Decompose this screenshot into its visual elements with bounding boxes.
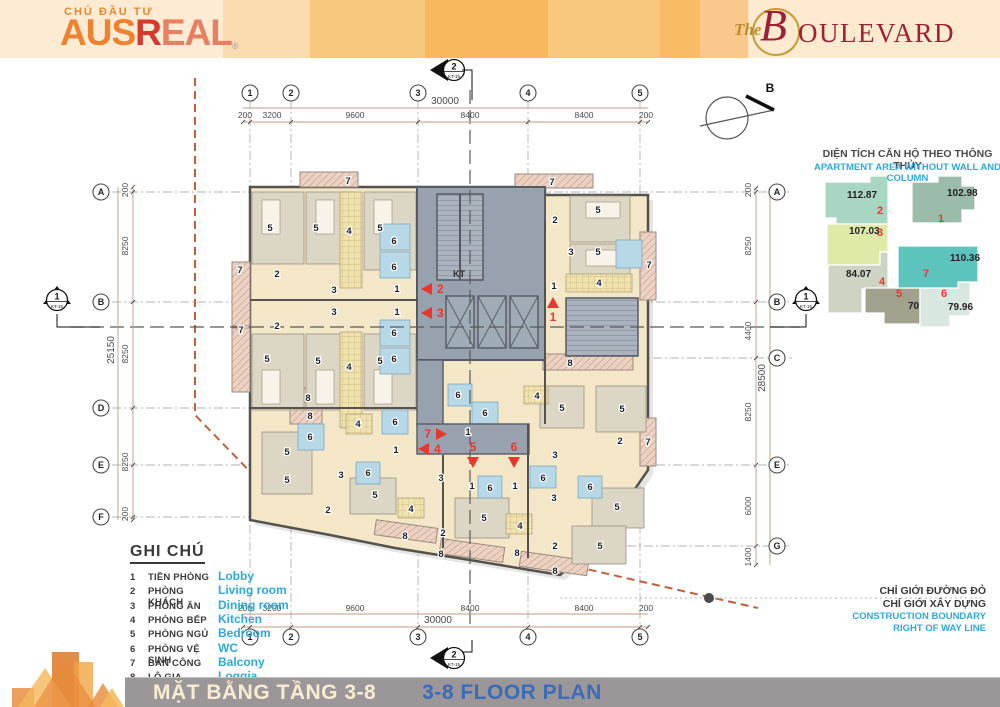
bed-icon (262, 370, 280, 404)
svg-text:107.03: 107.03 (849, 226, 880, 237)
svg-text:8400: 8400 (575, 603, 594, 613)
room-number: 8 (402, 531, 407, 542)
room-number: 1 (394, 307, 400, 318)
room-number: 4 (346, 226, 352, 237)
bed-icon (374, 370, 392, 404)
room-number: 5 (267, 223, 273, 234)
footer-title-en: 3-8 FLOOR PLAN (422, 681, 602, 705)
room-number: 5 (264, 354, 270, 365)
svg-text:30000: 30000 (424, 615, 452, 626)
svg-text:KT-15: KT-15 (800, 304, 813, 309)
svg-text:84.07: 84.07 (846, 269, 871, 280)
room-number: 6 (391, 328, 396, 339)
legend-item: 3PHÒNG ĂNDining room (130, 598, 330, 612)
svg-text:8250: 8250 (120, 344, 130, 363)
room-number: 4 (534, 391, 540, 402)
room-number: 5 (481, 513, 487, 524)
svg-text:KT-15: KT-15 (51, 304, 64, 309)
svg-text:5: 5 (637, 632, 642, 642)
room-number: 6 (391, 354, 396, 365)
room-number: 5 (372, 490, 378, 501)
svg-text:8400: 8400 (461, 603, 480, 613)
svg-text:KT-15: KT-15 (448, 74, 461, 79)
room-number: 6 (391, 262, 396, 273)
floor-plan-page: CHỦ ĐẦU TƯ AUSREAL® The B OULEVARD KT (0, 0, 1000, 707)
svg-text:200: 200 (238, 110, 252, 120)
room-number: 1 (394, 284, 400, 295)
svg-text:1: 1 (550, 310, 557, 324)
room-number: 5 (313, 223, 319, 234)
svg-text:3: 3 (415, 88, 420, 98)
room-number: 2 (274, 269, 279, 280)
svg-text:C: C (774, 353, 781, 363)
room-number: 7 (345, 176, 350, 187)
room-number: 1 (393, 445, 399, 456)
room-number: 3 (568, 247, 573, 258)
room-number: 4 (355, 419, 361, 430)
room-number: 5 (284, 447, 290, 458)
room-number: 5 (595, 247, 601, 258)
room-number: 3 (551, 493, 556, 504)
svg-text:G: G (773, 541, 780, 551)
svg-text:4: 4 (525, 88, 530, 98)
svg-text:1: 1 (54, 292, 59, 302)
bed-icon (316, 370, 334, 404)
svg-text:1400: 1400 (743, 547, 753, 566)
room-number: 6 (365, 468, 370, 479)
room-number: 7 (646, 260, 651, 271)
room-number: 6 (392, 417, 397, 428)
svg-text:6: 6 (941, 288, 947, 300)
kitchen (340, 192, 362, 288)
legend-item: 2PHÒNG KHÁCHLiving room (130, 583, 330, 597)
svg-text:5: 5 (637, 88, 642, 98)
svg-text:7: 7 (424, 427, 431, 441)
svg-text:KT: KT (453, 269, 465, 279)
room-number: 8 (567, 358, 572, 369)
room-number: 6 (307, 432, 312, 443)
svg-text:28500: 28500 (757, 364, 768, 392)
room-number: 1 (551, 281, 557, 292)
room-number: 5 (597, 541, 603, 552)
room-number: 8 (552, 566, 557, 577)
apartment-key-plan: 102.981112.872107.03384.07470.57579.9661… (825, 176, 980, 327)
room-number: 2 (274, 321, 279, 332)
room-number: 2 (325, 505, 330, 516)
legend-item: 6PHÒNG VỆ SINHWC (130, 641, 330, 655)
section-marker: 1KT-15 (792, 286, 820, 311)
room-number: 3 (552, 450, 557, 461)
boundary-note-en2: RIGHT OF WAY LINE (852, 623, 986, 635)
svg-text:5: 5 (896, 288, 902, 300)
room-number: 6 (587, 482, 592, 493)
keyplan-title-en: APARTMENT AREA WITHOUT WALL AND COLUMN (810, 162, 1000, 184)
room-number: 3 (338, 470, 343, 481)
legend-item: 5PHÒNG NGỦBedroom (130, 626, 330, 640)
room-number: 4 (517, 521, 523, 532)
svg-text:B: B (774, 297, 781, 307)
svg-text:2: 2 (877, 205, 883, 217)
room-number: 4 (346, 362, 352, 373)
svg-text:102.98: 102.98 (947, 188, 978, 199)
room-number: 7 (549, 177, 554, 188)
corridor (417, 360, 443, 426)
room-number: 5 (619, 404, 625, 415)
svg-text:1: 1 (938, 213, 944, 225)
svg-text:E: E (98, 460, 104, 470)
svg-text:200: 200 (120, 183, 130, 197)
section-marker: 2KT-15 (430, 59, 465, 81)
svg-text:9600: 9600 (346, 110, 365, 120)
svg-text:110.36: 110.36 (950, 253, 980, 264)
svg-text:2: 2 (451, 650, 456, 660)
svg-text:4: 4 (525, 632, 530, 642)
room-number: 2 (552, 541, 557, 552)
svg-text:200: 200 (639, 603, 653, 613)
room-number: 4 (408, 504, 414, 515)
room-number: 5 (595, 205, 601, 216)
svg-text:6000: 6000 (743, 496, 753, 515)
svg-text:7: 7 (923, 268, 929, 280)
boundary-note-vi2: CHỈ GIỚI XÂY DỰNG (852, 598, 986, 611)
bed-icon (316, 200, 334, 234)
room-number: 3 (331, 285, 336, 296)
svg-text:25150: 25150 (106, 336, 117, 364)
room-number: 1 (512, 481, 518, 492)
svg-text:6: 6 (511, 440, 518, 454)
svg-text:8400: 8400 (461, 110, 480, 120)
room-number: 8 (307, 411, 312, 422)
svg-text:E: E (774, 460, 780, 470)
svg-text:A: A (774, 187, 781, 197)
kitchen (340, 332, 362, 428)
north-compass-icon: B (700, 81, 775, 139)
boundary-note-vi1: CHỈ GIỚI ĐƯỜNG ĐỎ (852, 585, 986, 598)
room-legend: GHI CHÚ 1TIỀN PHÒNGLobby2PHÒNG KHÁCHLivi… (130, 543, 330, 684)
svg-text:200: 200 (120, 507, 130, 521)
svg-text:3: 3 (877, 227, 883, 239)
legend-item: 4PHÒNG BẾPKitchen (130, 612, 330, 626)
room-number: 1 (469, 481, 475, 492)
room-number: 5 (377, 223, 383, 234)
room-number: 7 (645, 437, 650, 448)
bed-icon (586, 250, 620, 266)
room-number: 6 (540, 473, 545, 484)
svg-text:2: 2 (451, 62, 456, 72)
room-number: 7 (237, 265, 242, 276)
svg-text:8250: 8250 (120, 236, 130, 255)
room-number: 5 (377, 356, 383, 367)
skyline-logo-icon (12, 652, 124, 707)
svg-text:2: 2 (437, 282, 444, 296)
room-number: 2 (552, 215, 557, 226)
room-number: 1 (465, 427, 471, 438)
section-marker: 2KT-15 (430, 647, 465, 669)
room-number: 6 (487, 483, 492, 494)
room-number: 2 (617, 436, 622, 447)
boundary-dot (704, 593, 714, 603)
svg-text:4400: 4400 (743, 321, 753, 340)
boundary-note-en1: CONSTRUCTION BOUNDARY (852, 611, 986, 623)
balcony (232, 328, 250, 392)
svg-text:4: 4 (879, 276, 886, 288)
bathroom (616, 240, 642, 268)
room-number: 8 (438, 549, 443, 560)
svg-text:9600: 9600 (346, 603, 365, 613)
svg-text:3: 3 (415, 632, 420, 642)
room-number: 3 (438, 473, 443, 484)
room-number: 5 (614, 502, 620, 513)
svg-text:30000: 30000 (431, 96, 459, 107)
room-number: 8 (305, 393, 310, 404)
bed-icon (586, 202, 620, 218)
room-number: 7 (238, 325, 243, 336)
svg-text:8250: 8250 (120, 452, 130, 471)
svg-text:200: 200 (743, 183, 753, 197)
room-number: 3 (331, 307, 336, 318)
svg-text:D: D (98, 403, 105, 413)
svg-text:200: 200 (639, 110, 653, 120)
svg-text:8250: 8250 (743, 402, 753, 421)
footer-title-vi: MẶT BẰNG TẦNG 3-8 (153, 681, 376, 705)
boundary-note: CHỈ GIỚI ĐƯỜNG ĐỎ CHỈ GIỚI XÂY DỰNG CONS… (852, 585, 986, 635)
room-number: 8 (514, 548, 519, 559)
svg-text:8400: 8400 (575, 110, 594, 120)
svg-text:B: B (766, 81, 775, 95)
room-number: 5 (559, 403, 565, 414)
legend-item: 1TIỀN PHÒNGLobby (130, 569, 330, 583)
room-number: 6 (482, 408, 487, 419)
svg-text:KT-15: KT-15 (448, 662, 461, 667)
svg-text:5: 5 (470, 440, 477, 454)
svg-text:B: B (98, 297, 105, 307)
legend-item: 7BAN CÔNGBalcony (130, 655, 330, 669)
svg-text:3: 3 (437, 306, 444, 320)
room-number: 6 (391, 236, 396, 247)
svg-text:4: 4 (434, 442, 441, 456)
room-number: 6 (455, 390, 460, 401)
svg-text:A: A (98, 187, 105, 197)
svg-text:1: 1 (803, 292, 808, 302)
footer-bar: MẶT BẰNG TẦNG 3-8 3-8 FLOOR PLAN (125, 677, 1000, 707)
svg-text:8250: 8250 (743, 236, 753, 255)
svg-text:F: F (98, 512, 104, 522)
svg-text:2: 2 (288, 88, 293, 98)
room-number: 5 (284, 475, 290, 486)
svg-text:112.87: 112.87 (847, 190, 877, 201)
svg-text:3200: 3200 (263, 110, 282, 120)
legend-rows: 1TIỀN PHÒNGLobby2PHÒNG KHÁCHLiving room3… (130, 569, 330, 684)
svg-text:79.96: 79.96 (948, 302, 973, 313)
room-number: 2 (440, 528, 445, 539)
section-marker: 1KT-15 (43, 286, 71, 311)
svg-text:1: 1 (247, 88, 252, 98)
room-number: 4 (596, 278, 602, 289)
room-number: 5 (315, 356, 321, 367)
legend-title: GHI CHÚ (130, 543, 205, 564)
